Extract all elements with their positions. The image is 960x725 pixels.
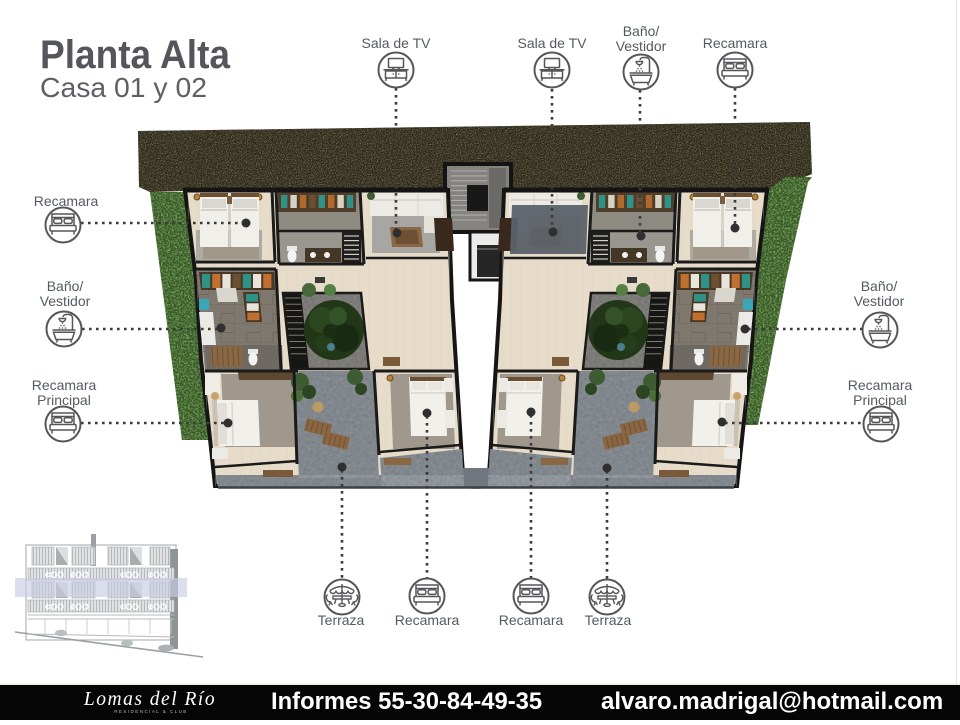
svg-text:alvaro.madrigal@hotmail.com: alvaro.madrigal@hotmail.com [601,688,943,715]
svg-text:Sala de TV: Sala de TV [517,35,587,51]
svg-text:Baño/: Baño/ [623,23,660,39]
svg-text:Recamara: Recamara [34,193,99,209]
svg-text:Vestidor: Vestidor [854,293,905,309]
svg-text:Informes 55-30-84-49-35: Informes 55-30-84-49-35 [271,688,542,715]
svg-text:Terraza: Terraza [585,612,632,628]
svg-text:Lomas del Río: Lomas del Río [83,689,216,710]
svg-text:Recamara: Recamara [32,377,97,393]
svg-text:¢OO: ¢OO [70,602,89,612]
svg-text:Vestidor: Vestidor [616,38,667,54]
svg-text:Recamara: Recamara [848,377,913,393]
svg-text:¢OO: ¢OO [45,602,64,612]
svg-text:Baño/: Baño/ [47,278,84,294]
svg-text:Recamara: Recamara [703,35,768,51]
svg-text:Baño/: Baño/ [861,278,898,294]
svg-text:Planta Alta: Planta Alta [40,33,231,77]
svg-text:¢OO: ¢OO [120,602,139,612]
svg-text:RESIDENCIAL & CLUB: RESIDENCIAL & CLUB [114,709,188,714]
svg-text:Recamara: Recamara [395,612,460,628]
svg-text:Casa 01 y 02: Casa 01 y 02 [40,72,207,103]
svg-text:Terraza: Terraza [318,612,365,628]
svg-text:Recamara: Recamara [499,612,564,628]
svg-text:Sala de TV: Sala de TV [361,35,431,51]
svg-text:¢OO: ¢OO [148,602,167,612]
svg-text:Vestidor: Vestidor [40,293,91,309]
